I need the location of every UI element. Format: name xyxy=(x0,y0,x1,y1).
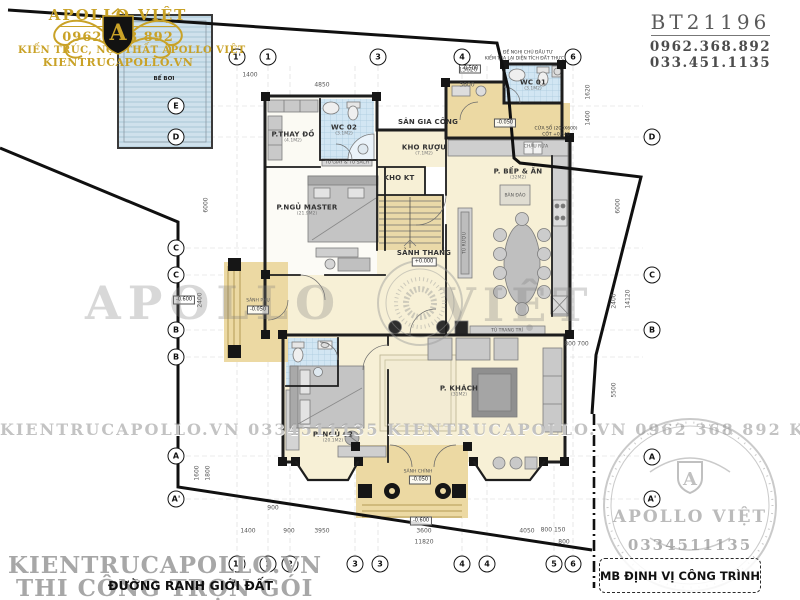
dimension-text: 14120 xyxy=(625,289,632,308)
room-name: SÂN GIA CÔNG xyxy=(398,118,458,126)
dimension-text: 1400 xyxy=(242,72,257,79)
logo-crest-icon: A xyxy=(18,6,218,64)
dimension-text: 5500 xyxy=(611,382,618,397)
grid-bubble-b: B xyxy=(168,349,185,366)
grid-bubble-e: E xyxy=(168,98,185,115)
dimension-text: 800 xyxy=(558,539,569,546)
dimension-text: 3600 xyxy=(459,82,474,89)
room-label-kho-kt: KHO KT xyxy=(383,174,414,182)
grid-bubble-3: 3 xyxy=(372,556,389,573)
elevation-marker: -0.050 xyxy=(409,476,431,485)
plan-note: KIỂM TRA LẠI DIỆN TÍCH ĐẤT THỰC TẾ xyxy=(485,57,571,62)
boundary-label: ĐƯỜNG RANH GIỚI ĐẤT xyxy=(108,578,273,593)
grid-bubble-4: 4 xyxy=(479,556,496,573)
grid-bubble-d: D xyxy=(644,129,661,146)
elevation-marker: -0.050 xyxy=(494,119,516,128)
furniture-label: TỦ GIÀY & TỦ SÁCH xyxy=(325,161,369,166)
plan-note: ĐỀ NGHỊ CHỦ ĐẦU TƯ xyxy=(503,51,553,56)
furniture-label: BÀN ĐẢO xyxy=(504,194,525,199)
grid-bubble-6: 6 xyxy=(565,49,582,66)
grid-bubble-4: 4 xyxy=(454,49,471,66)
room-name: P.NGỦ MASTER xyxy=(276,204,337,212)
room-label-s-nh-thang: SẢNH THANG xyxy=(397,249,451,257)
dimension-text: 13620 xyxy=(458,67,477,74)
grid-bubble-c: C xyxy=(168,240,185,257)
grid-bubble-a': A' xyxy=(168,491,185,508)
grid-bubble-a: A xyxy=(168,448,185,465)
room-area: (4.1M2) xyxy=(284,139,301,144)
room-name: KHO RƯỢU xyxy=(402,144,446,152)
room-label-s-n-gia-c-ng: SÂN GIA CÔNG xyxy=(398,118,458,126)
grid-bubble-d: D xyxy=(168,129,185,146)
room-name: KHO KT xyxy=(383,174,414,182)
room-area: (20.1M2) xyxy=(323,439,343,444)
dimension-text: 1600 xyxy=(194,465,201,480)
dimension-text: 6000 xyxy=(203,197,210,212)
room-name: WC 01 xyxy=(520,79,546,87)
header-block: BT21196 0962.368.892 033.451.1135 xyxy=(628,10,793,71)
room-name: SẢNH THANG xyxy=(397,249,451,257)
dimension-text: 6000 xyxy=(615,198,622,213)
dimension-text: 1400 xyxy=(240,528,255,535)
dimension-text: 900 xyxy=(283,528,294,535)
room-area: (7.1M2) xyxy=(415,152,432,157)
room-name: WC 02 xyxy=(331,124,357,132)
logo-block: A APOLLO VIỆT 0962 368 892 KIẾN TRÚC, NỘ… xyxy=(18,6,218,69)
watermark-viet: VIỆT xyxy=(440,278,595,332)
room-area: (21.9M2) xyxy=(297,212,317,217)
room-area: (32M2) xyxy=(510,176,526,181)
plan-note: CỐT +0.840 xyxy=(542,133,570,138)
furniture-label: CHẬU RỬA xyxy=(524,145,548,150)
header-phone-1: 0962.368.892 xyxy=(628,39,793,55)
furniture-label: SẢNH CHÍNH xyxy=(404,470,433,475)
furniture-label: TỦ RƯỢU xyxy=(463,232,468,254)
dimension-text: 800 xyxy=(564,341,575,348)
dimension-text: 3600 xyxy=(416,528,431,535)
watermark-apollo: APOLLO xyxy=(85,276,342,330)
dimension-text: 900 xyxy=(267,505,278,512)
grid-bubble-3: 3 xyxy=(370,49,387,66)
svg-text:A: A xyxy=(682,469,698,490)
room-label-p-thay-: P.THAY ĐỒ(4.1M2) xyxy=(271,131,314,144)
room-label-p-kh-ch: P. KHÁCH(31M2) xyxy=(440,385,478,398)
dimension-text: 4050 xyxy=(519,528,534,535)
elevation-marker: -0.600 xyxy=(410,517,432,526)
grid-bubble-4: 4 xyxy=(454,556,471,573)
dimension-text: 2400 xyxy=(611,293,618,308)
room-label-p-b-p-n: P. BẾP & ĂN(32M2) xyxy=(494,168,543,181)
dimension-text: 3950 xyxy=(314,528,329,535)
room-label-kho-r-u: KHO RƯỢU(7.1M2) xyxy=(402,144,446,157)
room-name: P. KHÁCH xyxy=(440,385,478,393)
grid-bubble-c: C xyxy=(644,267,661,284)
dimension-text: 700 xyxy=(577,341,588,348)
room-area: (3.1M2) xyxy=(335,132,352,137)
dimension-text: 1620 xyxy=(585,84,592,99)
furniture-label: BỂ BƠI xyxy=(154,76,175,82)
dimension-text: 4850 xyxy=(314,82,329,89)
header-phone-2: 033.451.1135 xyxy=(628,55,793,71)
floor-plan-sheet: P.THAY ĐỒ(4.1M2)WC 02(3.1M2)P.NGỦ MASTER… xyxy=(0,0,800,600)
stamp-shield-icon: A xyxy=(678,462,702,493)
stamp-brand: APOLLO VIỆT xyxy=(612,506,767,527)
grid-bubble-3: 3 xyxy=(347,556,364,573)
room-area: (3.1M2) xyxy=(524,87,541,92)
dimension-text: 1400 xyxy=(585,110,592,125)
elevation-marker: +0.000 xyxy=(412,258,437,267)
svg-text:A: A xyxy=(108,20,127,46)
room-label-p-ng-master: P.NGỦ MASTER(21.9M2) xyxy=(276,204,337,217)
dimension-text: 11820 xyxy=(414,539,433,546)
grid-bubble-1: 1 xyxy=(260,49,277,66)
room-area: (31M2) xyxy=(451,393,467,398)
room-label-wc-01: WC 01(3.1M2) xyxy=(520,79,546,92)
dimension-text: 1800 xyxy=(205,465,212,480)
room-name: P.THAY ĐỒ xyxy=(271,131,314,139)
dimension-text: 800 150 xyxy=(541,527,566,534)
plan-note: CỬA SỔ (200X600) xyxy=(534,127,577,132)
project-code: BT21196 xyxy=(651,10,771,36)
grid-bubble-b: B xyxy=(644,322,661,339)
grid-bubble-6: 6 xyxy=(565,556,582,573)
room-name: P. BẾP & ĂN xyxy=(494,168,543,176)
grid-bubble-5: 5 xyxy=(546,556,563,573)
room-label-wc-02: WC 02(3.1M2) xyxy=(331,124,357,137)
drawing-title-box: MB ĐỊNH VỊ CÔNG TRÌNH xyxy=(599,558,761,593)
stamp-phone: 0334511135 xyxy=(628,536,752,554)
